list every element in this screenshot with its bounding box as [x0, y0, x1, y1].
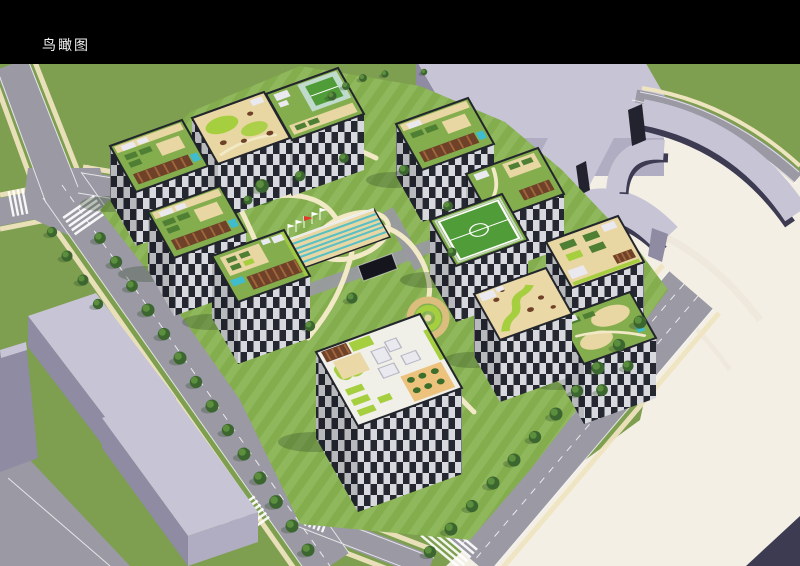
- letterboxed-presentation-page: 鸟瞰图: [0, 0, 800, 566]
- page-title: 鸟瞰图: [42, 35, 90, 55]
- aerial-rendering: [0, 64, 800, 566]
